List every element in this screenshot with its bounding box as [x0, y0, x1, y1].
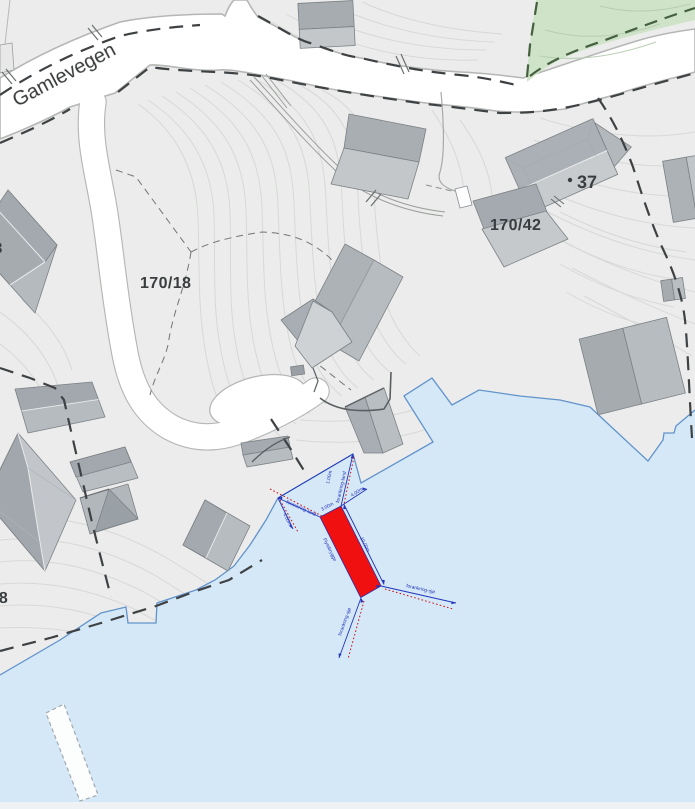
svg-text:170/18: 170/18 — [140, 275, 191, 292]
svg-text:170/42: 170/42 — [490, 217, 541, 234]
svg-text:68: 68 — [0, 590, 8, 607]
svg-text:37: 37 — [577, 172, 597, 192]
svg-text:3: 3 — [0, 240, 2, 257]
